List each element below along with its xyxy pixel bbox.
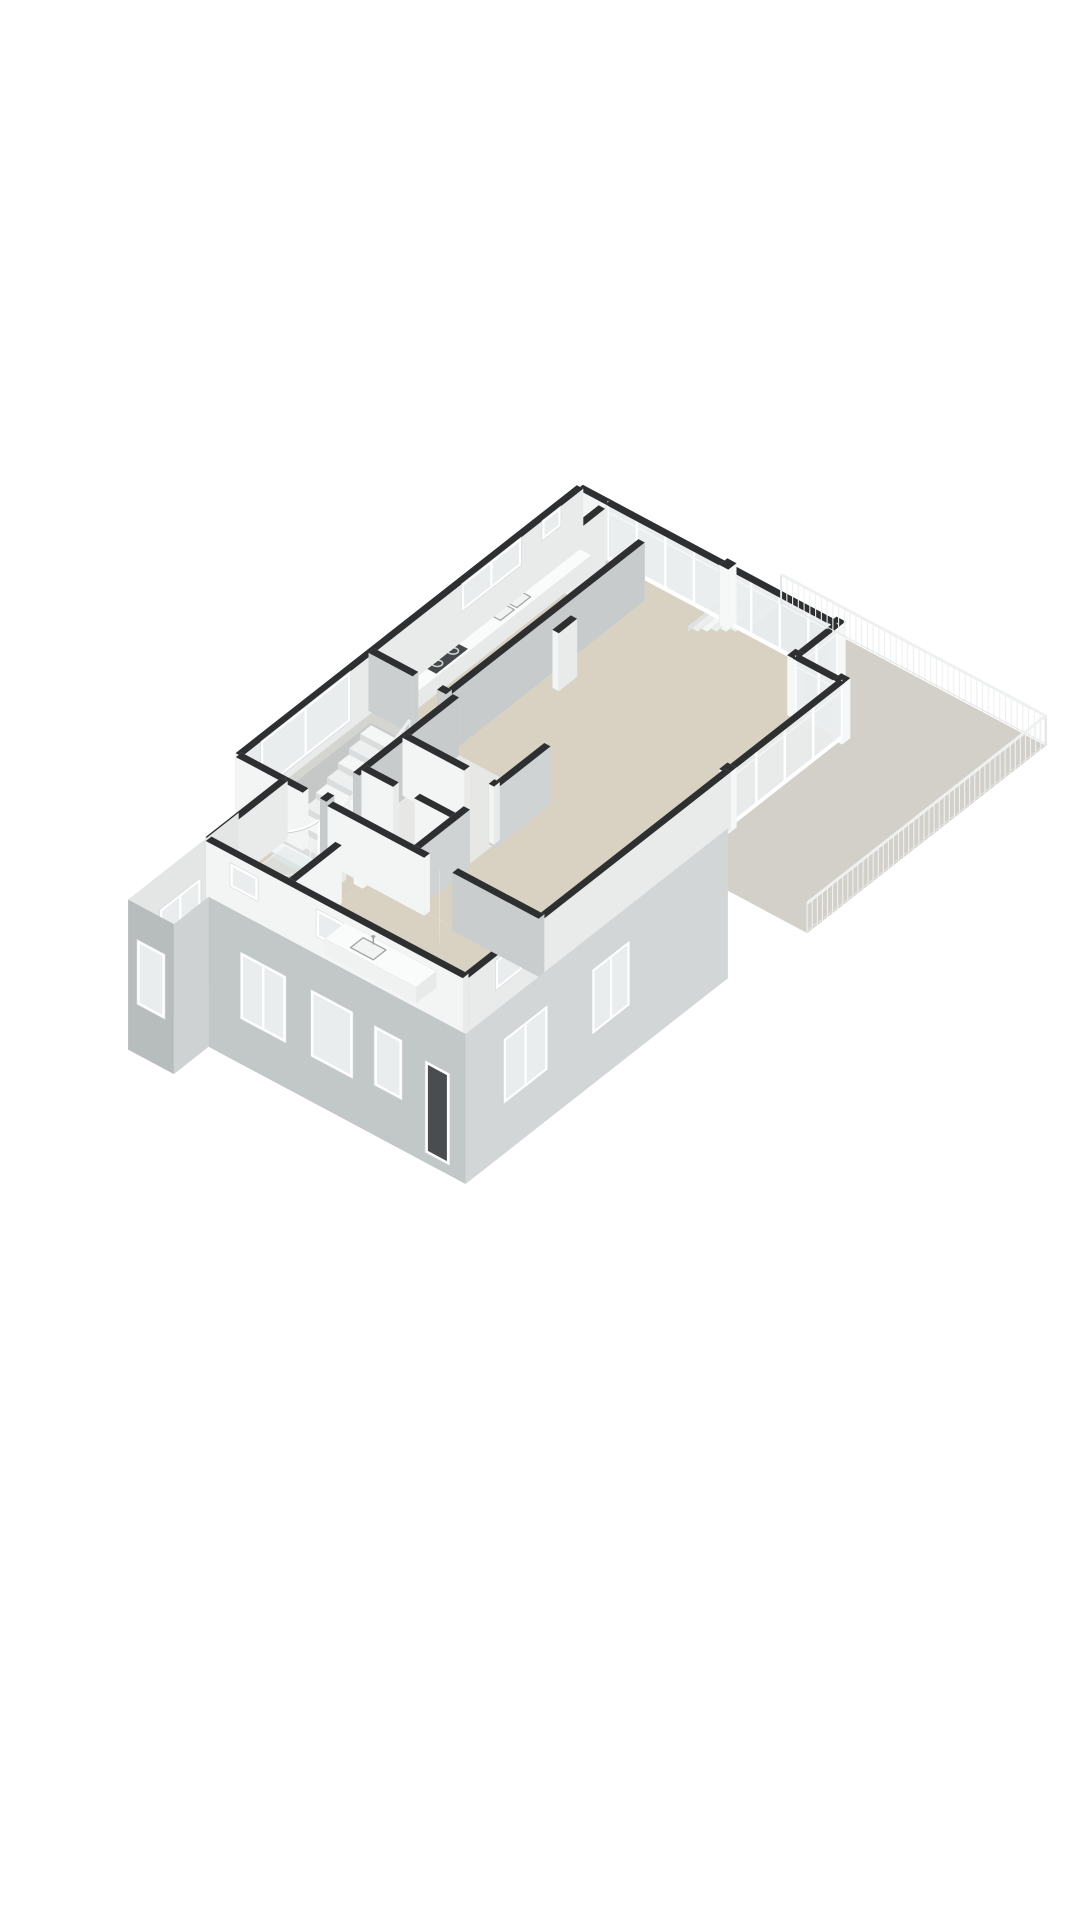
closet-divider-a2 bbox=[489, 779, 500, 844]
glass-post-1 bbox=[719, 558, 736, 629]
floorplan-3d-render bbox=[0, 0, 1080, 1920]
plinth-west-sw-face bbox=[128, 900, 174, 1075]
plinth-west-se-face bbox=[174, 897, 209, 1074]
floorplan-canvas bbox=[0, 0, 1080, 1920]
